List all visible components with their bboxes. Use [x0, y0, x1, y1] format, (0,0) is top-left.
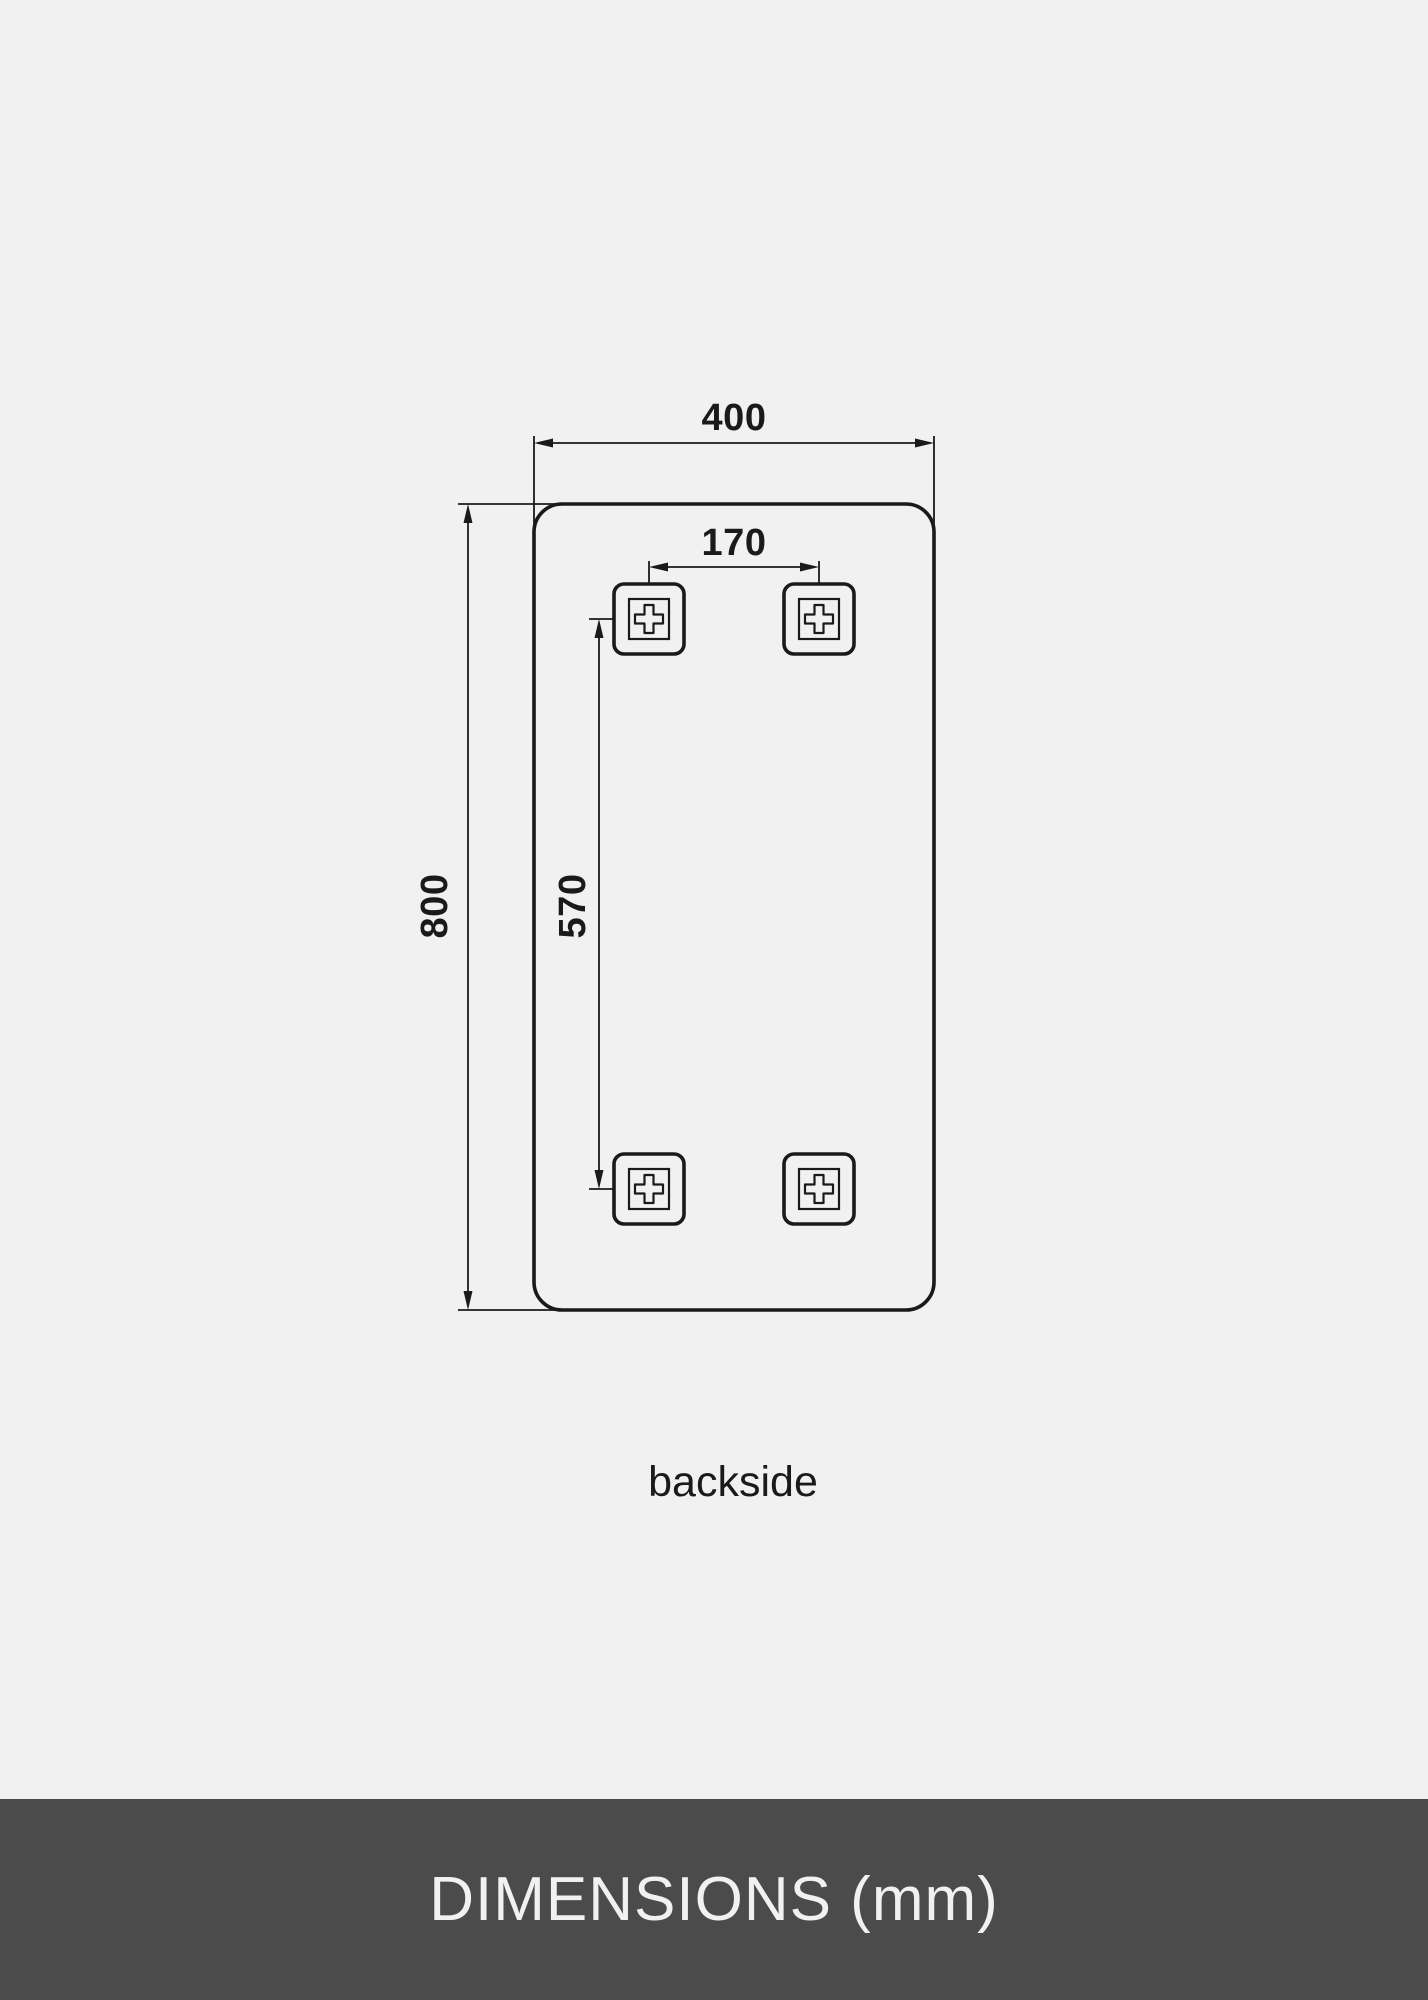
- height-dimension: 800: [414, 504, 560, 1310]
- technical-drawing-area: 400 800 170: [0, 0, 1428, 1799]
- arrowhead-right: [800, 563, 819, 572]
- mounting-bracket-top-right: [784, 584, 854, 654]
- bracket-spacing-label: 170: [702, 522, 767, 564]
- arrowhead-left: [649, 563, 668, 572]
- arrowhead-bottom: [464, 1291, 473, 1310]
- product-dimension-sheet: 400 800 170: [0, 0, 1428, 2000]
- bracket-vertical-spacing-label: 570: [552, 874, 594, 939]
- bracket-spacing-dimension: 170: [649, 522, 819, 584]
- height-dimension-label: 800: [414, 874, 456, 939]
- arrowhead-bottom: [595, 1170, 604, 1189]
- width-dimension-label: 400: [702, 397, 767, 439]
- footer-bar: DIMENSIONS (mm): [0, 1799, 1428, 2000]
- bracket-vertical-spacing-dimension: 570: [552, 619, 613, 1189]
- mounting-bracket-bottom-left: [614, 1154, 684, 1224]
- mounting-bracket-bottom-right: [784, 1154, 854, 1224]
- mirror-backside-diagram: 400 800 170: [0, 0, 1428, 1799]
- drawing-caption: backside: [648, 1458, 818, 1506]
- mounting-bracket-top-left: [614, 584, 684, 654]
- arrowhead-right: [915, 439, 934, 448]
- arrowhead-top: [595, 619, 604, 638]
- arrowhead-left: [534, 439, 553, 448]
- arrowhead-top: [464, 504, 473, 523]
- footer-title: DIMENSIONS (mm): [429, 1864, 999, 1935]
